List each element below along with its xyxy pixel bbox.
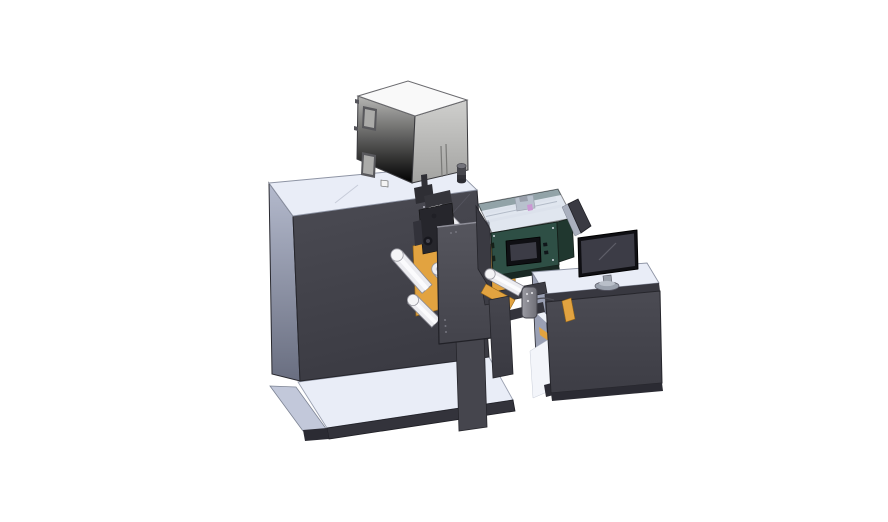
unit-latch	[491, 243, 495, 249]
pendant-button	[526, 293, 528, 295]
roller-end-cap	[391, 249, 403, 261]
head-speck	[423, 206, 425, 208]
head-knob-large-center	[426, 239, 430, 243]
cover-hole	[450, 232, 452, 234]
top-knob-cylinder	[457, 163, 466, 183]
head-knob-small	[432, 214, 437, 219]
enclosure-latch-plate	[381, 180, 388, 187]
roller-end-cap	[407, 294, 418, 305]
cabinet-right-column	[456, 334, 487, 431]
enclosure-window-upper	[364, 109, 375, 128]
cad-viewport	[0, 0, 888, 522]
machine-render	[0, 0, 888, 522]
pendant-button	[527, 300, 529, 302]
unit-screw	[493, 235, 495, 237]
bridge-column	[489, 296, 513, 378]
roller-end-cap	[485, 269, 495, 279]
knob-bottom	[457, 179, 466, 184]
cover-hole	[455, 231, 457, 233]
unit-screw	[552, 259, 554, 261]
top-enclosure	[354, 81, 468, 187]
cover-hole	[445, 331, 447, 333]
base-left-edge	[303, 428, 329, 441]
knob-top	[457, 163, 466, 168]
unit-display-screen	[510, 242, 537, 261]
pendant-body	[522, 287, 537, 318]
cover-hole	[444, 319, 446, 321]
unit-button	[544, 251, 549, 255]
cover-hole	[445, 325, 447, 327]
monitor-base-top	[599, 281, 615, 286]
enclosure-window-lower	[363, 155, 374, 175]
unit-latch	[492, 256, 496, 262]
pendant-button	[531, 292, 533, 294]
unit-button	[543, 243, 548, 247]
unit-screw	[552, 227, 554, 229]
